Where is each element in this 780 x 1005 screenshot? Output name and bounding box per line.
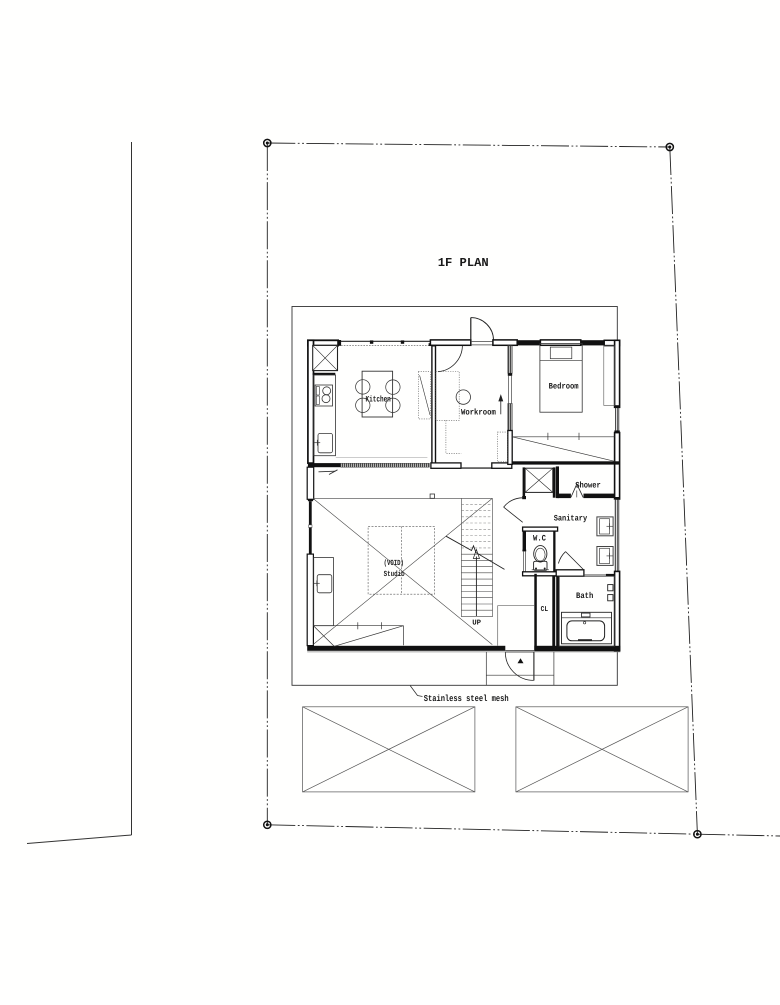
- svg-text:Bath: Bath: [576, 591, 593, 601]
- svg-text:W.C: W.C: [533, 533, 546, 543]
- svg-text:(VOID): (VOID): [384, 559, 404, 568]
- svg-text:Sanitary: Sanitary: [554, 514, 588, 524]
- svg-text:Bedroom: Bedroom: [549, 381, 579, 391]
- svg-text:Workroom: Workroom: [461, 408, 496, 418]
- svg-text:UP: UP: [472, 620, 481, 628]
- svg-text:1F PLAN: 1F PLAN: [438, 256, 489, 270]
- svg-text:Kitchen: Kitchen: [366, 395, 391, 405]
- svg-text:CL: CL: [541, 606, 549, 614]
- svg-text:Stainless steel mesh: Stainless steel mesh: [424, 694, 509, 704]
